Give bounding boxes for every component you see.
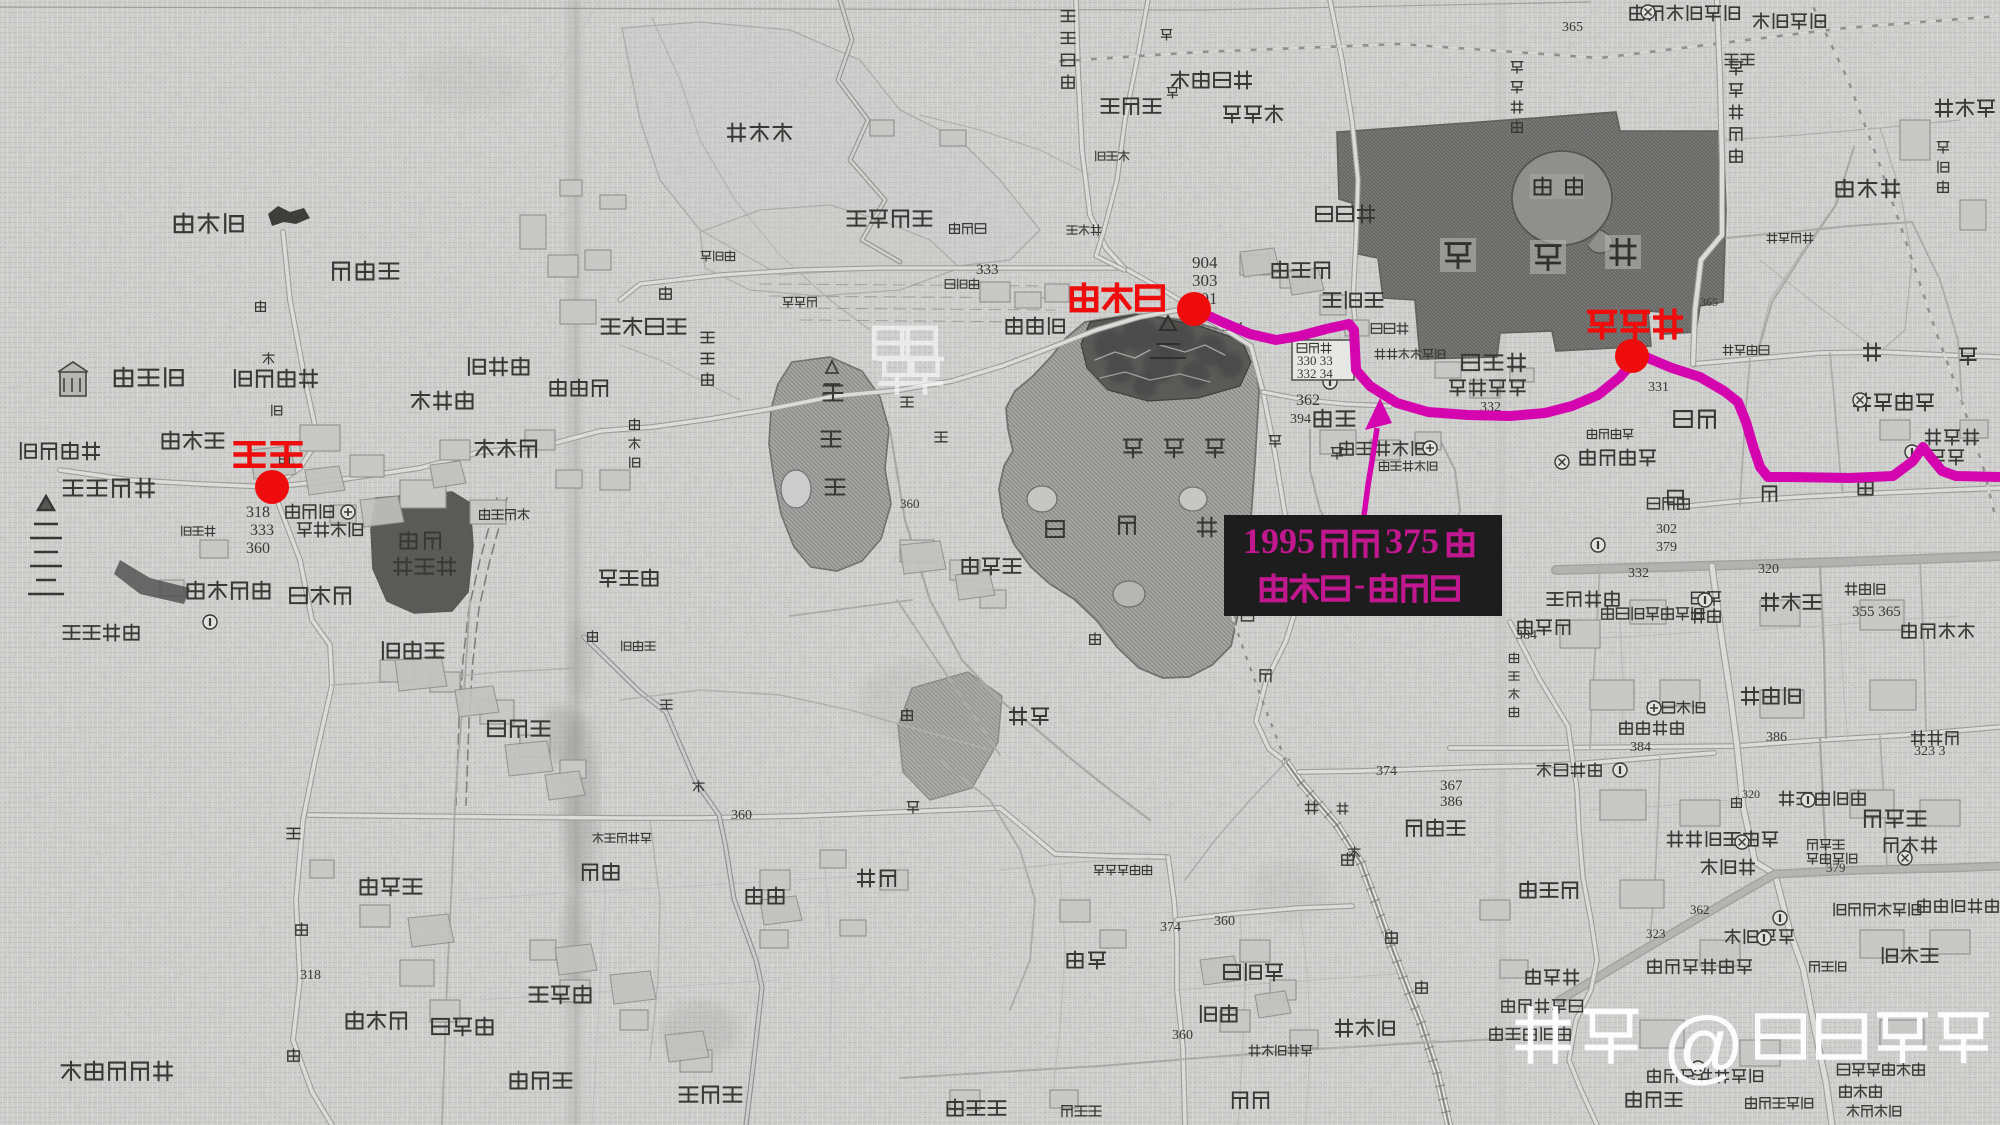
- svg-text:1995: 1995: [1243, 521, 1315, 561]
- svg-text:375: 375: [1385, 521, 1439, 561]
- svg-text:-: -: [1354, 566, 1365, 603]
- svg-text:@: @: [1662, 1001, 1745, 1092]
